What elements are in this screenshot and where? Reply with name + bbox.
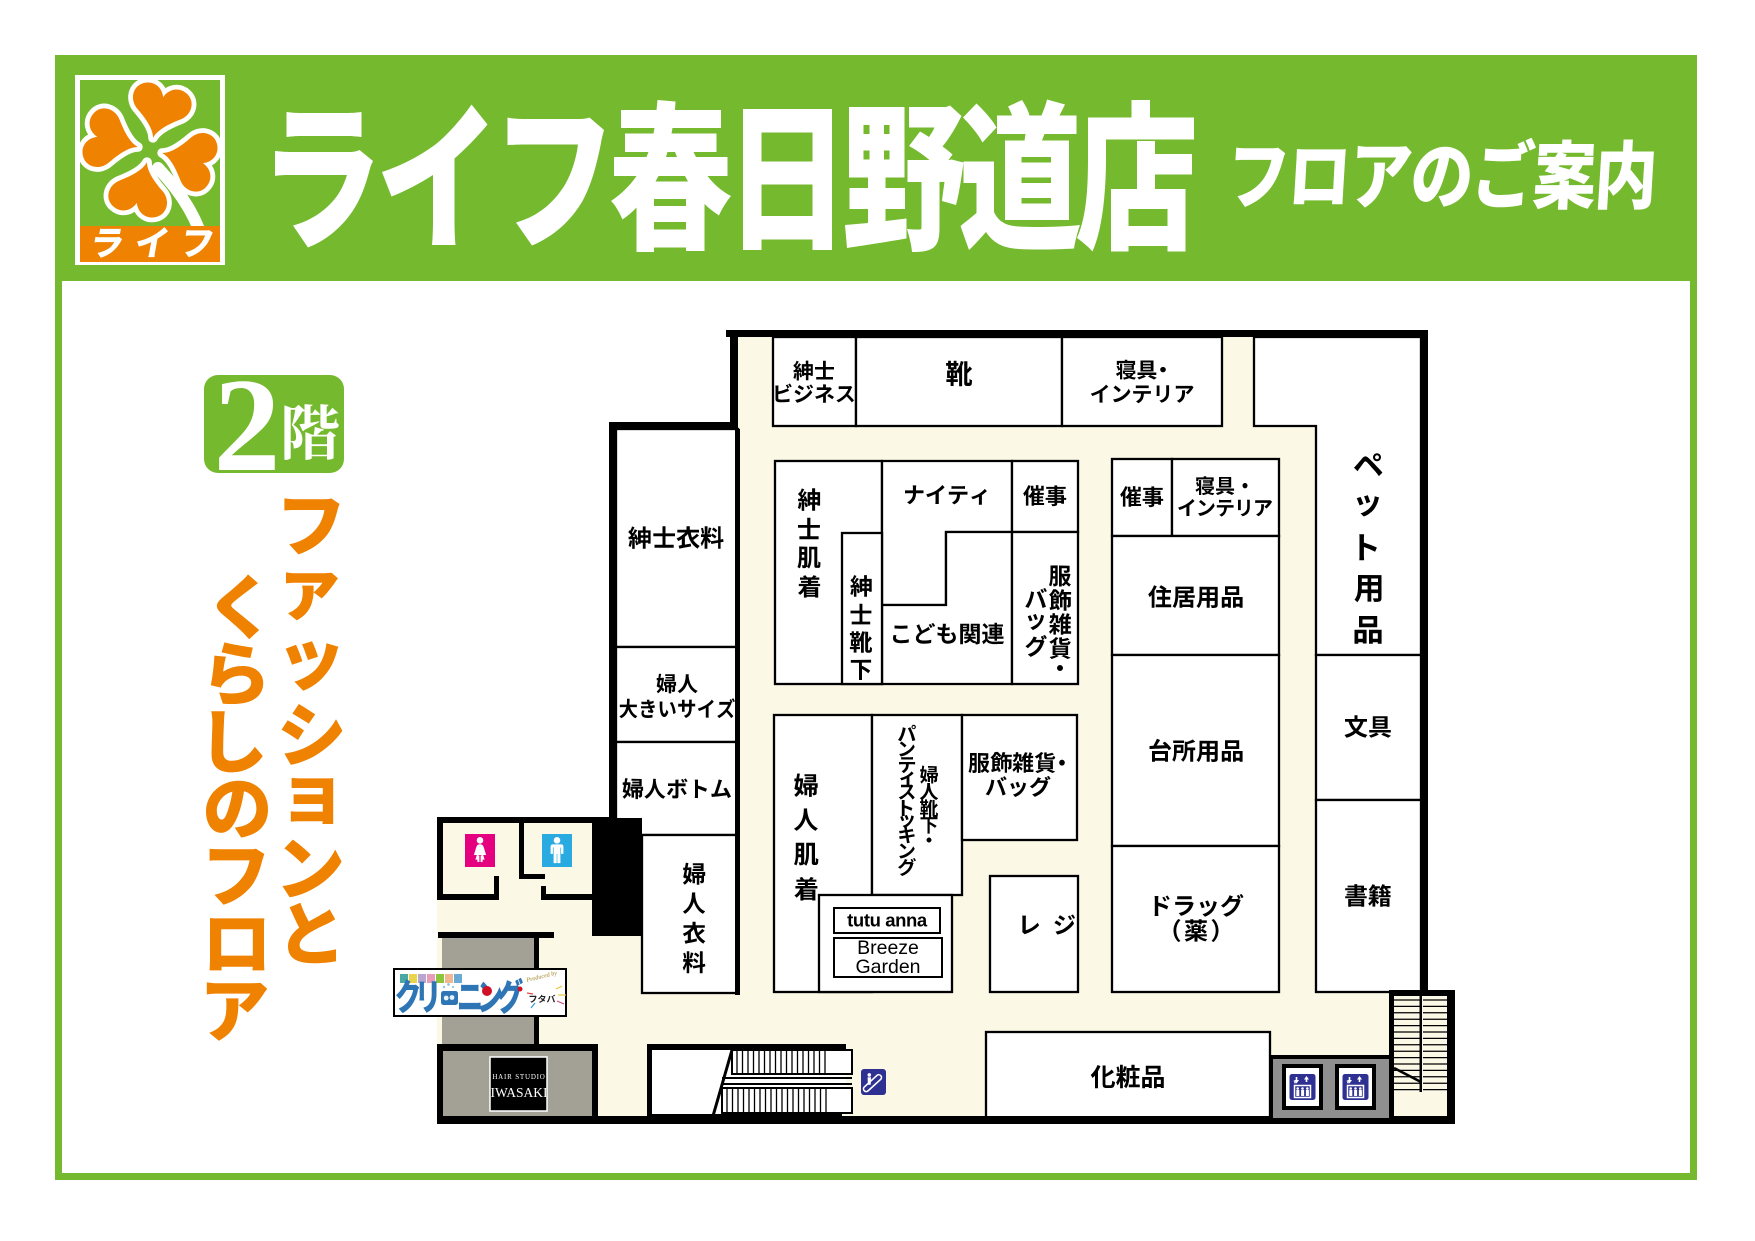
svg-text:tutu anna: tutu anna <box>847 910 928 931</box>
svg-text:Garden: Garden <box>855 956 920 978</box>
svg-text:2: 2 <box>214 351 281 499</box>
svg-text:IWASAKI: IWASAKI <box>491 1085 548 1100</box>
svg-text:HAIR STUDIO: HAIR STUDIO <box>492 1073 545 1081</box>
